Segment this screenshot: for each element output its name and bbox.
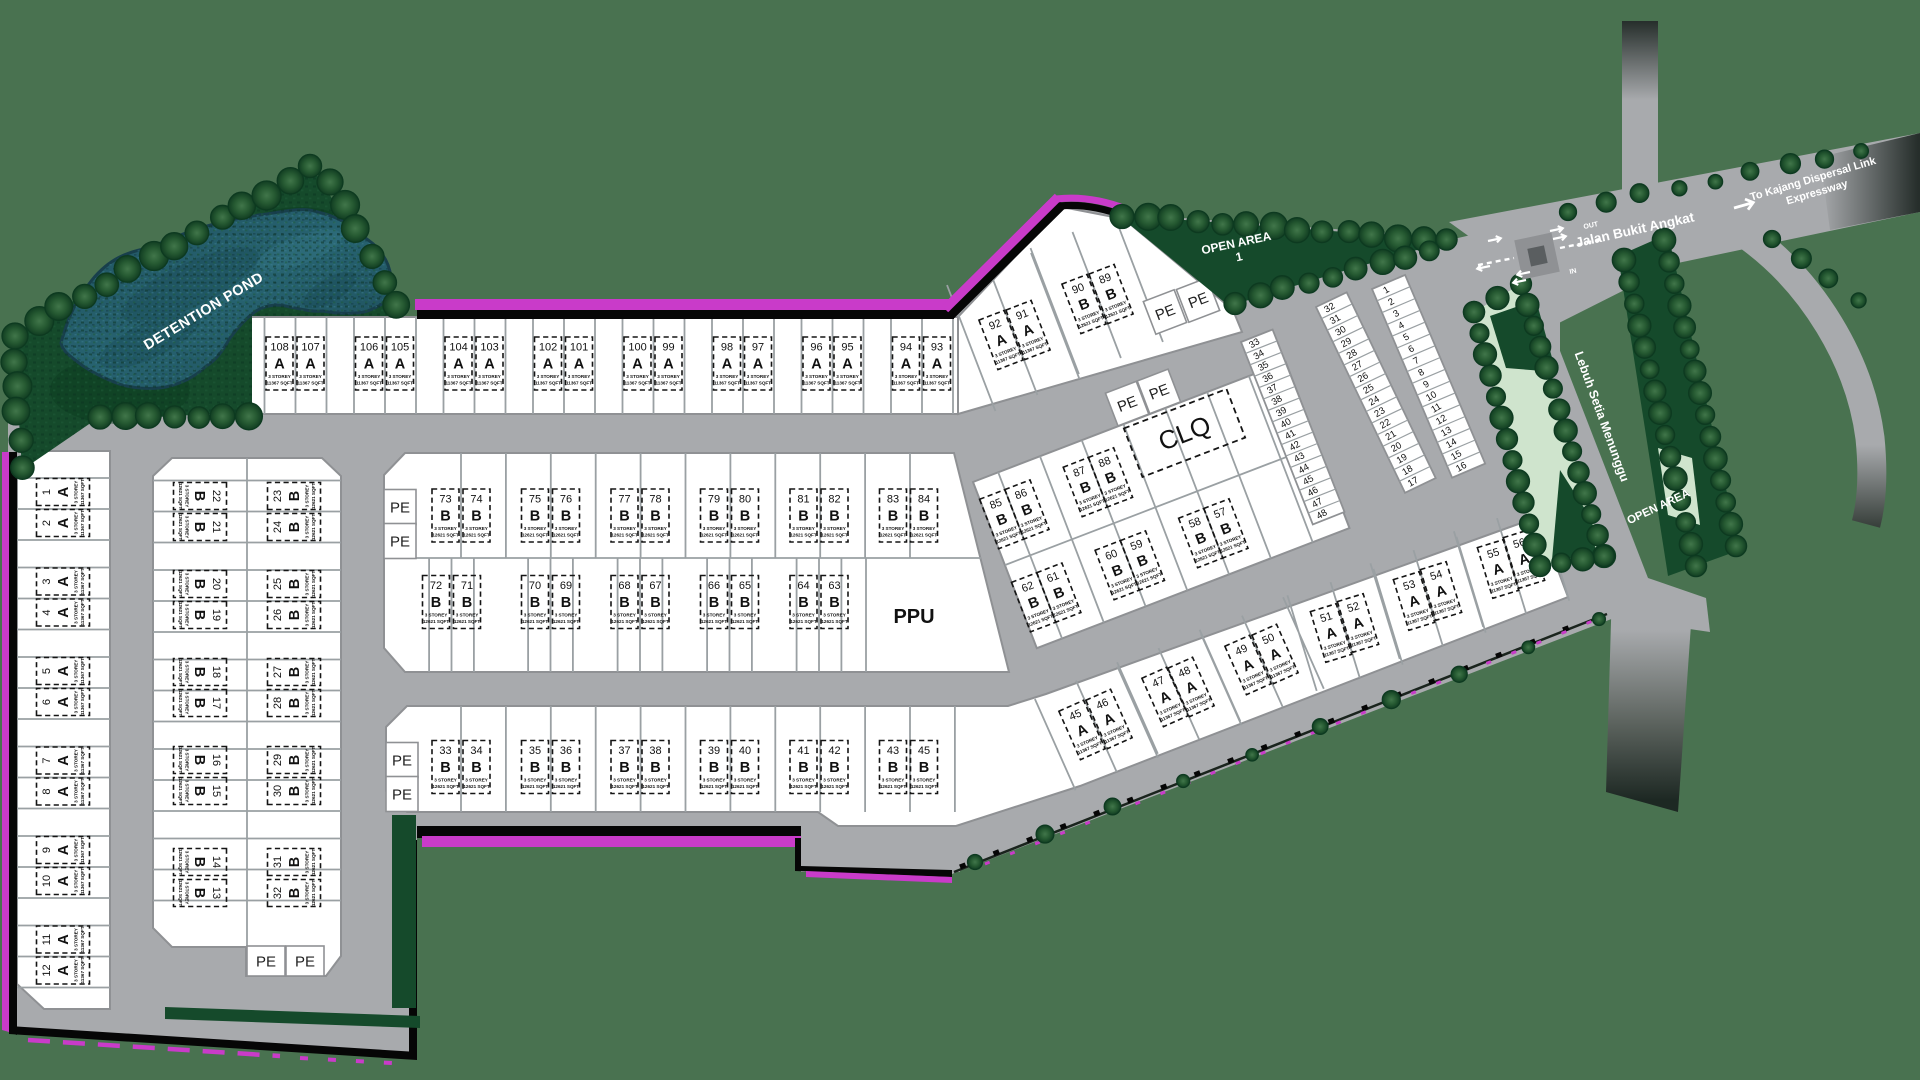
svg-text:12621 SQFT: 12621 SQFT	[821, 619, 847, 624]
svg-text:3 STOREY: 3 STOREY	[613, 613, 636, 618]
svg-text:12621 SQFT: 12621 SQFT	[311, 690, 316, 716]
svg-text:2: 2	[41, 520, 53, 526]
svg-text:3 STOREY: 3 STOREY	[568, 374, 591, 379]
svg-text:3 STOREY: 3 STOREY	[74, 749, 79, 772]
svg-text:3 STOREY: 3 STOREY	[305, 851, 310, 874]
svg-text:B: B	[709, 595, 719, 611]
svg-text:21: 21	[210, 521, 222, 533]
svg-text:12: 12	[41, 964, 53, 976]
svg-text:11367 SQFT: 11367 SQFT	[80, 747, 85, 773]
svg-text:7: 7	[41, 757, 53, 763]
svg-text:11367 SQFT: 11367 SQFT	[445, 381, 471, 386]
svg-text:B: B	[287, 579, 303, 589]
svg-text:A: A	[56, 665, 72, 676]
svg-text:74: 74	[470, 494, 482, 506]
svg-text:3 STOREY: 3 STOREY	[185, 573, 190, 596]
svg-text:11367 SQFT: 11367 SQFT	[655, 381, 681, 386]
svg-text:B: B	[709, 760, 719, 776]
svg-text:3 STOREY: 3 STOREY	[305, 882, 310, 905]
svg-text:B: B	[287, 610, 303, 620]
svg-text:3 STOREY: 3 STOREY	[644, 613, 667, 618]
svg-text:11367 SQFT: 11367 SQFT	[80, 957, 85, 983]
svg-text:12621 SQFT: 12621 SQFT	[178, 514, 183, 540]
svg-text:10: 10	[41, 875, 53, 887]
svg-text:B: B	[829, 509, 839, 525]
svg-text:A: A	[484, 357, 495, 373]
svg-text:96: 96	[810, 342, 822, 354]
svg-text:70: 70	[529, 580, 541, 592]
svg-text:3 STOREY: 3 STOREY	[644, 526, 667, 531]
svg-text:3 STOREY: 3 STOREY	[268, 374, 291, 379]
svg-text:12621 SQFT: 12621 SQFT	[311, 849, 316, 875]
svg-text:30: 30	[272, 785, 284, 797]
svg-text:12621 SQFT: 12621 SQFT	[311, 659, 316, 685]
svg-text:65: 65	[739, 580, 751, 592]
svg-text:93: 93	[931, 342, 943, 354]
svg-text:A: A	[56, 875, 72, 886]
svg-text:A: A	[901, 357, 912, 373]
svg-text:B: B	[191, 579, 207, 589]
svg-text:12621 SQFT: 12621 SQFT	[553, 784, 579, 789]
svg-text:A: A	[395, 357, 406, 373]
svg-text:3 STOREY: 3 STOREY	[185, 780, 190, 803]
svg-text:3 STOREY: 3 STOREY	[465, 526, 488, 531]
svg-text:A: A	[722, 357, 733, 373]
svg-text:12621 SQFT: 12621 SQFT	[178, 747, 183, 773]
svg-text:3 STOREY: 3 STOREY	[465, 778, 488, 783]
svg-text:3 STOREY: 3 STOREY	[74, 601, 79, 624]
svg-text:3 STOREY: 3 STOREY	[823, 613, 846, 618]
svg-text:12621 SQFT: 12621 SQFT	[432, 784, 458, 789]
svg-text:PE: PE	[256, 953, 276, 970]
svg-text:34: 34	[470, 745, 482, 757]
svg-text:11: 11	[41, 934, 53, 945]
svg-text:3 STOREY: 3 STOREY	[305, 604, 310, 627]
svg-text:3 STOREY: 3 STOREY	[734, 613, 757, 618]
svg-text:12621 SQFT: 12621 SQFT	[311, 514, 316, 540]
svg-text:3 STOREY: 3 STOREY	[478, 374, 501, 379]
svg-text:12621 SQFT: 12621 SQFT	[178, 602, 183, 628]
svg-text:6: 6	[41, 699, 53, 705]
svg-text:A: A	[364, 357, 375, 373]
svg-text:3 STOREY: 3 STOREY	[703, 526, 726, 531]
svg-text:11367 SQFT: 11367 SQFT	[924, 381, 950, 386]
svg-text:B: B	[440, 509, 450, 525]
svg-text:A: A	[453, 357, 464, 373]
svg-text:PE: PE	[392, 786, 412, 803]
svg-text:97: 97	[752, 342, 764, 354]
svg-text:12621 SQFT: 12621 SQFT	[642, 784, 668, 789]
svg-text:3 STOREY: 3 STOREY	[555, 526, 578, 531]
svg-text:3 STOREY: 3 STOREY	[299, 374, 322, 379]
svg-text:3 STOREY: 3 STOREY	[358, 374, 381, 379]
svg-text:B: B	[561, 595, 571, 611]
svg-text:4: 4	[41, 609, 53, 615]
svg-text:38: 38	[649, 745, 661, 757]
svg-text:3 STOREY: 3 STOREY	[524, 613, 547, 618]
svg-text:3 STOREY: 3 STOREY	[882, 778, 905, 783]
svg-text:104: 104	[449, 342, 467, 354]
svg-text:82: 82	[828, 494, 840, 506]
svg-text:3 STOREY: 3 STOREY	[185, 749, 190, 772]
svg-text:3 STOREY: 3 STOREY	[895, 374, 918, 379]
svg-text:8: 8	[41, 788, 53, 794]
svg-text:83: 83	[887, 494, 899, 506]
svg-text:63: 63	[828, 580, 840, 592]
svg-text:IN: IN	[1569, 268, 1577, 276]
svg-text:12621 SQFT: 12621 SQFT	[178, 659, 183, 685]
svg-text:3: 3	[41, 578, 53, 584]
svg-text:11367 SQFT: 11367 SQFT	[80, 926, 85, 952]
svg-text:PE: PE	[295, 953, 315, 970]
svg-text:103: 103	[480, 342, 498, 354]
svg-text:100: 100	[628, 342, 646, 354]
svg-text:B: B	[561, 760, 571, 776]
svg-text:12621 SQFT: 12621 SQFT	[178, 880, 183, 906]
svg-text:3 STOREY: 3 STOREY	[703, 778, 726, 783]
svg-text:B: B	[287, 667, 303, 677]
svg-text:3 STOREY: 3 STOREY	[305, 780, 310, 803]
svg-text:B: B	[471, 760, 481, 776]
svg-text:3 STOREY: 3 STOREY	[305, 573, 310, 596]
svg-text:98: 98	[721, 342, 733, 354]
svg-text:B: B	[191, 857, 207, 867]
svg-text:B: B	[462, 595, 472, 611]
svg-text:3 STOREY: 3 STOREY	[447, 374, 470, 379]
svg-text:3 STOREY: 3 STOREY	[703, 613, 726, 618]
svg-text:12621 SQFT: 12621 SQFT	[522, 533, 548, 538]
svg-text:3 STOREY: 3 STOREY	[305, 692, 310, 715]
svg-text:43: 43	[887, 745, 899, 757]
svg-text:12621 SQFT: 12621 SQFT	[911, 533, 937, 538]
svg-text:B: B	[287, 888, 303, 898]
svg-text:B: B	[191, 888, 207, 898]
svg-text:80: 80	[739, 494, 751, 506]
svg-text:68: 68	[618, 580, 630, 592]
svg-text:B: B	[191, 491, 207, 501]
svg-text:3 STOREY: 3 STOREY	[389, 374, 412, 379]
svg-text:B: B	[888, 509, 898, 525]
svg-text:12621 SQFT: 12621 SQFT	[178, 483, 183, 509]
svg-text:B: B	[191, 786, 207, 796]
svg-text:B: B	[650, 509, 660, 525]
svg-text:B: B	[287, 698, 303, 708]
svg-text:12621 SQFT: 12621 SQFT	[178, 571, 183, 597]
svg-text:71: 71	[461, 580, 473, 592]
svg-text:A: A	[56, 965, 72, 976]
svg-text:39: 39	[708, 745, 720, 757]
svg-text:B: B	[530, 595, 540, 611]
svg-text:11367 SQFT: 11367 SQFT	[834, 381, 860, 386]
svg-text:A: A	[811, 357, 822, 373]
svg-text:102: 102	[539, 342, 557, 354]
svg-text:12621 SQFT: 12621 SQFT	[701, 619, 727, 624]
svg-text:A: A	[56, 844, 72, 855]
svg-text:11367 SQFT: 11367 SQFT	[80, 837, 85, 863]
svg-text:12621 SQFT: 12621 SQFT	[522, 619, 548, 624]
svg-text:3 STOREY: 3 STOREY	[74, 512, 79, 535]
svg-text:3 STOREY: 3 STOREY	[613, 778, 636, 783]
svg-text:25: 25	[272, 578, 284, 590]
svg-text:B: B	[287, 755, 303, 765]
svg-text:9: 9	[41, 847, 53, 853]
svg-text:3 STOREY: 3 STOREY	[716, 374, 739, 379]
svg-text:12621 SQFT: 12621 SQFT	[463, 784, 489, 789]
svg-text:11367 SQFT: 11367 SQFT	[80, 599, 85, 625]
svg-text:12621 SQFT: 12621 SQFT	[423, 619, 449, 624]
svg-text:A: A	[663, 357, 674, 373]
svg-text:A: A	[56, 607, 72, 618]
svg-text:12621 SQFT: 12621 SQFT	[311, 571, 316, 597]
svg-text:12621 SQFT: 12621 SQFT	[553, 619, 579, 624]
svg-text:12621 SQFT: 12621 SQFT	[311, 483, 316, 509]
svg-text:24: 24	[272, 521, 284, 533]
svg-text:12621 SQFT: 12621 SQFT	[553, 533, 579, 538]
svg-text:PE: PE	[392, 752, 412, 769]
svg-text:28: 28	[272, 697, 284, 709]
svg-text:B: B	[829, 760, 839, 776]
svg-text:12621 SQFT: 12621 SQFT	[611, 619, 637, 624]
svg-text:107: 107	[301, 342, 319, 354]
svg-text:12621 SQFT: 12621 SQFT	[522, 784, 548, 789]
svg-text:PPU: PPU	[893, 606, 934, 628]
svg-text:3 STOREY: 3 STOREY	[185, 692, 190, 715]
svg-text:B: B	[191, 755, 207, 765]
svg-text:3 STOREY: 3 STOREY	[456, 613, 479, 618]
svg-text:12621 SQFT: 12621 SQFT	[790, 533, 816, 538]
svg-text:12621 SQFT: 12621 SQFT	[790, 784, 816, 789]
svg-text:B: B	[561, 509, 571, 525]
svg-text:3 STOREY: 3 STOREY	[555, 778, 578, 783]
svg-text:3 STOREY: 3 STOREY	[74, 481, 79, 504]
svg-text:A: A	[56, 576, 72, 587]
svg-text:105: 105	[391, 342, 409, 354]
svg-text:79: 79	[708, 494, 720, 506]
svg-text:12621 SQFT: 12621 SQFT	[880, 784, 906, 789]
svg-text:11367 SQFT: 11367 SQFT	[893, 381, 919, 386]
svg-text:3 STOREY: 3 STOREY	[524, 778, 547, 783]
svg-text:3 STOREY: 3 STOREY	[882, 526, 905, 531]
svg-text:45: 45	[918, 745, 930, 757]
svg-text:11367 SQFT: 11367 SQFT	[80, 658, 85, 684]
svg-text:12621 SQFT: 12621 SQFT	[611, 533, 637, 538]
svg-text:B: B	[287, 491, 303, 501]
svg-text:3 STOREY: 3 STOREY	[305, 661, 310, 684]
svg-text:12621 SQFT: 12621 SQFT	[311, 747, 316, 773]
svg-text:66: 66	[708, 580, 720, 592]
svg-text:B: B	[530, 509, 540, 525]
svg-text:64: 64	[797, 580, 809, 592]
svg-text:12621 SQFT: 12621 SQFT	[178, 849, 183, 875]
svg-text:12621 SQFT: 12621 SQFT	[790, 619, 816, 624]
svg-text:3 STOREY: 3 STOREY	[74, 780, 79, 803]
svg-text:78: 78	[649, 494, 661, 506]
svg-text:B: B	[191, 610, 207, 620]
svg-text:3 STOREY: 3 STOREY	[434, 778, 457, 783]
svg-text:3 STOREY: 3 STOREY	[836, 374, 859, 379]
svg-text:3 STOREY: 3 STOREY	[805, 374, 828, 379]
svg-text:12621 SQFT: 12621 SQFT	[880, 533, 906, 538]
svg-text:11367 SQFT: 11367 SQFT	[566, 381, 592, 386]
svg-text:3 STOREY: 3 STOREY	[74, 691, 79, 714]
svg-text:B: B	[530, 760, 540, 776]
svg-text:3 STOREY: 3 STOREY	[74, 959, 79, 982]
svg-text:17: 17	[210, 697, 222, 709]
svg-text:67: 67	[649, 580, 661, 592]
svg-text:73: 73	[439, 494, 451, 506]
svg-text:11367 SQFT: 11367 SQFT	[266, 381, 292, 386]
svg-text:76: 76	[560, 494, 572, 506]
svg-text:11367 SQFT: 11367 SQFT	[476, 381, 502, 386]
svg-text:3 STOREY: 3 STOREY	[524, 526, 547, 531]
svg-text:3 STOREY: 3 STOREY	[185, 516, 190, 539]
svg-text:11367 SQFT: 11367 SQFT	[80, 568, 85, 594]
svg-text:A: A	[56, 517, 72, 528]
svg-text:12621 SQFT: 12621 SQFT	[642, 619, 668, 624]
svg-text:3 STOREY: 3 STOREY	[537, 374, 560, 379]
svg-text:B: B	[798, 509, 808, 525]
svg-text:12621 SQFT: 12621 SQFT	[821, 533, 847, 538]
svg-text:94: 94	[900, 342, 912, 354]
svg-text:11367 SQFT: 11367 SQFT	[356, 381, 382, 386]
svg-text:11367 SQFT: 11367 SQFT	[803, 381, 829, 386]
svg-text:37: 37	[618, 745, 630, 757]
svg-text:12621 SQFT: 12621 SQFT	[463, 533, 489, 538]
svg-text:3 STOREY: 3 STOREY	[425, 613, 448, 618]
svg-text:12621 SQFT: 12621 SQFT	[642, 533, 668, 538]
svg-text:3 STOREY: 3 STOREY	[792, 613, 815, 618]
svg-text:3 STOREY: 3 STOREY	[185, 851, 190, 874]
svg-text:75: 75	[529, 494, 541, 506]
svg-text:A: A	[842, 357, 853, 373]
svg-text:16: 16	[210, 754, 222, 766]
svg-text:11367 SQFT: 11367 SQFT	[80, 778, 85, 804]
svg-text:3 STOREY: 3 STOREY	[792, 526, 815, 531]
svg-text:19: 19	[210, 609, 222, 621]
svg-text:3 STOREY: 3 STOREY	[74, 928, 79, 951]
svg-text:PE: PE	[390, 533, 410, 550]
svg-text:A: A	[632, 357, 643, 373]
svg-text:B: B	[740, 760, 750, 776]
svg-text:11367 SQFT: 11367 SQFT	[80, 868, 85, 894]
svg-text:106: 106	[360, 342, 378, 354]
svg-text:15: 15	[210, 785, 222, 797]
svg-text:B: B	[919, 509, 929, 525]
svg-text:99: 99	[662, 342, 674, 354]
svg-text:A: A	[543, 357, 554, 373]
svg-text:3 STOREY: 3 STOREY	[734, 526, 757, 531]
svg-text:32: 32	[272, 887, 284, 899]
svg-text:3 STOREY: 3 STOREY	[185, 882, 190, 905]
svg-text:31: 31	[272, 856, 284, 868]
svg-text:12621 SQFT: 12621 SQFT	[432, 533, 458, 538]
svg-text:33: 33	[439, 745, 451, 757]
svg-text:23: 23	[272, 490, 284, 502]
svg-text:12621 SQFT: 12621 SQFT	[732, 619, 758, 624]
svg-text:84: 84	[918, 494, 930, 506]
svg-text:B: B	[919, 760, 929, 776]
svg-text:11367 SQFT: 11367 SQFT	[624, 381, 650, 386]
svg-text:A: A	[932, 357, 943, 373]
svg-text:PE: PE	[390, 499, 410, 516]
svg-text:A: A	[56, 755, 72, 766]
svg-text:3 STOREY: 3 STOREY	[434, 526, 457, 531]
svg-text:12621 SQFT: 12621 SQFT	[701, 533, 727, 538]
svg-text:13: 13	[210, 887, 222, 899]
svg-text:27: 27	[272, 666, 284, 678]
svg-text:12621 SQFT: 12621 SQFT	[178, 690, 183, 716]
svg-text:B: B	[619, 509, 629, 525]
svg-text:36: 36	[560, 745, 572, 757]
svg-text:72: 72	[430, 580, 442, 592]
svg-text:3 STOREY: 3 STOREY	[926, 374, 949, 379]
svg-text:A: A	[56, 786, 72, 797]
svg-text:12621 SQFT: 12621 SQFT	[701, 784, 727, 789]
svg-text:12621 SQFT: 12621 SQFT	[311, 602, 316, 628]
svg-text:1: 1	[41, 489, 53, 495]
svg-text:5: 5	[41, 668, 53, 674]
svg-text:81: 81	[797, 494, 809, 506]
svg-text:B: B	[829, 595, 839, 611]
svg-text:3 STOREY: 3 STOREY	[185, 604, 190, 627]
svg-text:95: 95	[841, 342, 853, 354]
svg-text:B: B	[440, 760, 450, 776]
svg-text:29: 29	[272, 754, 284, 766]
svg-text:B: B	[191, 698, 207, 708]
svg-text:11367 SQFT: 11367 SQFT	[387, 381, 413, 386]
svg-text:3 STOREY: 3 STOREY	[913, 778, 936, 783]
svg-text:20: 20	[210, 578, 222, 590]
svg-text:A: A	[753, 357, 764, 373]
svg-text:B: B	[619, 760, 629, 776]
svg-text:A: A	[274, 357, 285, 373]
svg-text:B: B	[619, 595, 629, 611]
svg-text:B: B	[798, 595, 808, 611]
svg-text:3 STOREY: 3 STOREY	[185, 485, 190, 508]
svg-text:A: A	[56, 696, 72, 707]
svg-text:22: 22	[210, 490, 222, 502]
svg-text:B: B	[287, 786, 303, 796]
svg-text:11367 SQFT: 11367 SQFT	[297, 381, 323, 386]
svg-text:11367 SQFT: 11367 SQFT	[745, 381, 771, 386]
svg-text:3 STOREY: 3 STOREY	[657, 374, 680, 379]
svg-text:12621 SQFT: 12621 SQFT	[311, 880, 316, 906]
svg-text:3 STOREY: 3 STOREY	[823, 778, 846, 783]
svg-text:B: B	[740, 595, 750, 611]
svg-text:3 STOREY: 3 STOREY	[626, 374, 649, 379]
svg-text:69: 69	[560, 580, 572, 592]
svg-text:B: B	[798, 760, 808, 776]
svg-text:B: B	[650, 595, 660, 611]
svg-text:12621 SQFT: 12621 SQFT	[454, 619, 480, 624]
svg-text:11367 SQFT: 11367 SQFT	[714, 381, 740, 386]
svg-text:3 STOREY: 3 STOREY	[823, 526, 846, 531]
svg-text:77: 77	[618, 494, 630, 506]
svg-text:B: B	[191, 667, 207, 677]
svg-text:3 STOREY: 3 STOREY	[747, 374, 770, 379]
svg-text:3 STOREY: 3 STOREY	[305, 516, 310, 539]
svg-text:3 STOREY: 3 STOREY	[74, 570, 79, 593]
svg-text:A: A	[56, 486, 72, 497]
svg-text:41: 41	[797, 745, 809, 757]
svg-text:B: B	[740, 509, 750, 525]
svg-text:B: B	[431, 595, 441, 611]
svg-text:12621 SQFT: 12621 SQFT	[821, 784, 847, 789]
svg-text:11367 SQFT: 11367 SQFT	[80, 510, 85, 536]
svg-text:A: A	[56, 934, 72, 945]
svg-text:3 STOREY: 3 STOREY	[74, 870, 79, 893]
svg-text:40: 40	[739, 745, 751, 757]
